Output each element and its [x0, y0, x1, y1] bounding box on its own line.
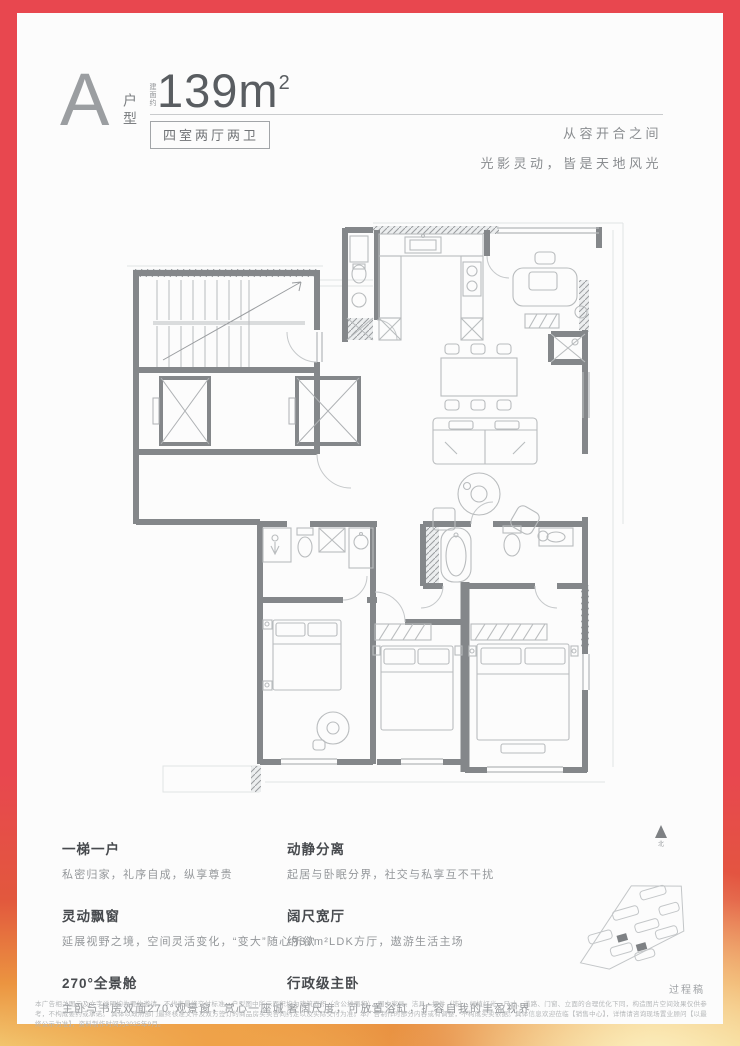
area-prefix-label: 建面约 [147, 83, 157, 107]
floor-plan [105, 222, 635, 797]
header-divider [150, 114, 663, 115]
area-superscript: 2 [279, 72, 291, 94]
area-value: 139m2 [157, 67, 291, 114]
site-plan [557, 861, 707, 981]
unit-type-label: 户型 [120, 93, 140, 129]
walls [133, 227, 599, 772]
tagline-line1: 从容开合之间 [480, 119, 662, 149]
elevator-crosses [153, 378, 359, 444]
layout-spec-box: 四室两厅两卫 [150, 121, 270, 149]
north-label: 北 [650, 839, 672, 848]
stairs [153, 280, 305, 367]
feature-title: 动静分离 [287, 838, 567, 858]
feature-title: 阔尺宽厅 [287, 905, 567, 925]
disclaimer-text: 本广告相关图示及文字说明均为要约邀请，不代表最终交付标准。户型图中所示面积均为建… [35, 1000, 707, 1030]
unit-letter: A [60, 63, 109, 137]
tagline: 从容开合之间 光影灵动，皆是天地风光 [480, 119, 662, 179]
area-number: 139m [157, 64, 279, 117]
poster-card: A 户型 建面约 139m2 四室两厅两卫 从容开合之间 光影灵动，皆是天地风光 [17, 13, 723, 1024]
feature-item: 阔尺宽厅 约37m²LDK方厅，遨游生活主场 [287, 905, 567, 949]
tagline-line2: 光影灵动，皆是天地风光 [480, 149, 662, 179]
compass: 北 [650, 825, 672, 848]
feature-title: 行政级主卧 [287, 972, 567, 992]
hatched-walls [133, 226, 589, 792]
furniture [263, 234, 587, 753]
feature-desc: 起居与卧眠分界，社交与私享互不干扰 [287, 866, 567, 882]
feature-desc: 约37m²LDK方厅，遨游生活主场 [287, 933, 567, 949]
north-arrow-icon [655, 825, 667, 838]
feature-item: 动静分离 起居与卧眠分界，社交与私享互不干扰 [287, 838, 567, 882]
disclaimer-line2: 具体以政府部门最终核准文件及双方签订的商品房买卖合同约定以及实际交付为准。本广告… [35, 1011, 707, 1028]
elevators [161, 378, 359, 444]
draft-watermark: 过程稿 [669, 981, 705, 996]
